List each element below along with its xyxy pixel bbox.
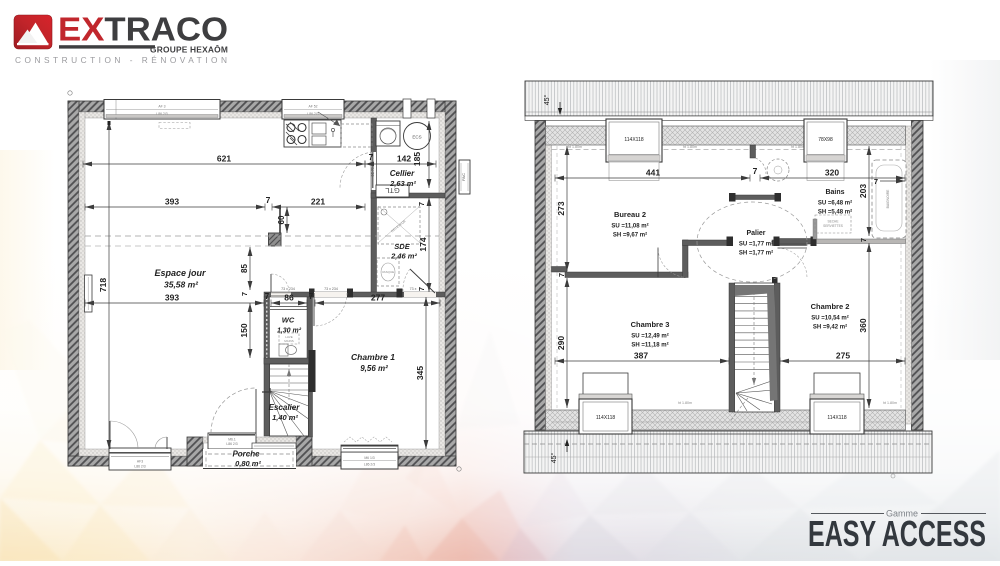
svg-text:73 x 234: 73 x 234 bbox=[281, 287, 295, 291]
svg-text:718: 718 bbox=[98, 278, 108, 292]
svg-text:7: 7 bbox=[265, 292, 270, 301]
svg-text:SH =1,77 m²: SH =1,77 m² bbox=[739, 250, 773, 257]
svg-text:7: 7 bbox=[369, 152, 374, 162]
svg-text:7: 7 bbox=[417, 287, 426, 291]
svg-text:7: 7 bbox=[859, 238, 868, 242]
svg-text:85: 85 bbox=[240, 264, 249, 273]
svg-text:SU =12,49 m²: SU =12,49 m² bbox=[631, 333, 669, 340]
svg-text:SU =6,48 m²: SU =6,48 m² bbox=[818, 200, 852, 207]
svg-text:L86 2/3: L86 2/3 bbox=[226, 442, 237, 446]
svg-text:277: 277 bbox=[371, 293, 385, 303]
svg-text:273: 273 bbox=[556, 201, 566, 215]
svg-text:60: 60 bbox=[277, 215, 286, 224]
svg-text:45°: 45° bbox=[543, 95, 551, 106]
svg-text:1,40 m²: 1,40 m² bbox=[272, 413, 298, 422]
svg-text:SH =9,42 m²: SH =9,42 m² bbox=[813, 324, 847, 331]
svg-text:9,56 m²: 9,56 m² bbox=[360, 364, 388, 373]
svg-text:AF3: AF3 bbox=[137, 460, 143, 464]
svg-text:7: 7 bbox=[266, 195, 271, 205]
svg-text:86: 86 bbox=[284, 293, 294, 303]
svg-text:320: 320 bbox=[825, 168, 839, 178]
svg-text:SECHE: SECHE bbox=[828, 220, 839, 224]
svg-text:Chambre 3: Chambre 3 bbox=[631, 320, 670, 329]
svg-text:621: 621 bbox=[217, 154, 231, 164]
svg-text:ECS: ECS bbox=[412, 135, 421, 140]
svg-text:114X118: 114X118 bbox=[596, 415, 615, 421]
svg-text:393: 393 bbox=[165, 197, 179, 207]
svg-text:ht 1.80m: ht 1.80m bbox=[683, 145, 697, 149]
svg-text:SH =9,67 m²: SH =9,67 m² bbox=[613, 232, 647, 239]
svg-text:PAC: PAC bbox=[461, 173, 466, 181]
svg-text:7: 7 bbox=[309, 292, 314, 301]
svg-text:GROUPE HEXAÔM: GROUPE HEXAÔM bbox=[150, 43, 228, 54]
svg-text:Palier: Palier bbox=[746, 230, 765, 237]
svg-text:SH =11,18 m²: SH =11,18 m² bbox=[631, 342, 668, 349]
svg-text:441: 441 bbox=[646, 168, 660, 178]
svg-text:AF 3: AF 3 bbox=[158, 105, 165, 109]
svg-text:0,80 m²: 0,80 m² bbox=[235, 459, 261, 468]
svg-text:BAIGNOIRE: BAIGNOIRE bbox=[886, 189, 890, 209]
svg-text:Bureau 2: Bureau 2 bbox=[614, 210, 646, 219]
svg-text:345: 345 bbox=[415, 366, 425, 380]
svg-text:73 x 234: 73 x 234 bbox=[324, 287, 338, 291]
svg-text:M6 1/3: M6 1/3 bbox=[364, 456, 374, 460]
svg-text:SU =11,08 m²: SU =11,08 m² bbox=[611, 223, 648, 230]
svg-text:L86 2/3: L86 2/3 bbox=[364, 463, 375, 467]
svg-text:Chambre 2: Chambre 2 bbox=[811, 302, 850, 311]
svg-text:M6.1: M6.1 bbox=[228, 438, 236, 442]
svg-text:SU =1,77 m²: SU =1,77 m² bbox=[739, 241, 773, 248]
svg-text:SDE: SDE bbox=[394, 242, 410, 251]
svg-text:Bains: Bains bbox=[825, 189, 844, 196]
svg-text:WC: WC bbox=[282, 316, 295, 325]
svg-text:7: 7 bbox=[240, 292, 249, 296]
svg-text:EASY ACCESS: EASY ACCESS bbox=[808, 513, 986, 554]
svg-text:221: 221 bbox=[311, 197, 325, 207]
svg-text:114X118: 114X118 bbox=[624, 137, 643, 143]
svg-text:7: 7 bbox=[753, 166, 758, 176]
svg-text:ht 1.80m: ht 1.80m bbox=[568, 145, 582, 149]
svg-text:ht 1.80m: ht 1.80m bbox=[883, 401, 897, 405]
svg-text:7: 7 bbox=[417, 202, 426, 206]
svg-text:SH =5,48 m²: SH =5,48 m² bbox=[818, 209, 852, 216]
svg-text:275: 275 bbox=[836, 351, 850, 361]
svg-text:EXTRACO: EXTRACO bbox=[58, 12, 228, 49]
svg-text:Escalier: Escalier bbox=[269, 403, 301, 412]
svg-text:78X98: 78X98 bbox=[818, 137, 833, 143]
svg-text:VASQUE: VASQUE bbox=[382, 270, 394, 274]
svg-text:ht 1.80m: ht 1.80m bbox=[791, 145, 805, 149]
svg-text:142: 142 bbox=[397, 154, 411, 164]
svg-text:174: 174 bbox=[418, 237, 428, 251]
svg-text:Cellier: Cellier bbox=[390, 169, 415, 178]
svg-text:45°: 45° bbox=[550, 453, 558, 464]
svg-text:185: 185 bbox=[412, 152, 422, 166]
svg-text:150: 150 bbox=[239, 323, 249, 337]
svg-text:AF 52: AF 52 bbox=[308, 105, 317, 109]
svg-text:114X118: 114X118 bbox=[827, 415, 846, 421]
svg-text:2,63 m²: 2,63 m² bbox=[389, 179, 416, 188]
svg-text:73 x: 73 x bbox=[410, 287, 417, 291]
svg-text:35,58 m²: 35,58 m² bbox=[164, 280, 199, 290]
svg-text:ht 1.80m: ht 1.80m bbox=[678, 401, 692, 405]
svg-text:7: 7 bbox=[874, 177, 878, 186]
svg-text:Porche: Porche bbox=[232, 450, 260, 459]
svg-text:387: 387 bbox=[634, 351, 648, 361]
svg-text:7: 7 bbox=[557, 273, 566, 277]
svg-text:1,30 m²: 1,30 m² bbox=[277, 328, 302, 335]
svg-text:203: 203 bbox=[858, 184, 868, 198]
svg-text:360: 360 bbox=[858, 318, 868, 332]
svg-text:L86 2/3: L86 2/3 bbox=[134, 465, 145, 469]
svg-text:SU =10,54 m²: SU =10,54 m² bbox=[811, 315, 849, 322]
svg-text:SERVIETTES: SERVIETTES bbox=[823, 224, 843, 228]
svg-text:290: 290 bbox=[556, 336, 566, 350]
svg-text:CE 73: CE 73 bbox=[371, 167, 375, 177]
svg-text:MAINS: MAINS bbox=[284, 339, 294, 343]
svg-text:Chambre 1: Chambre 1 bbox=[351, 352, 395, 362]
svg-text:Espace jour: Espace jour bbox=[154, 268, 206, 278]
svg-text:393: 393 bbox=[165, 293, 179, 303]
svg-text:2,46 m²: 2,46 m² bbox=[390, 252, 417, 261]
